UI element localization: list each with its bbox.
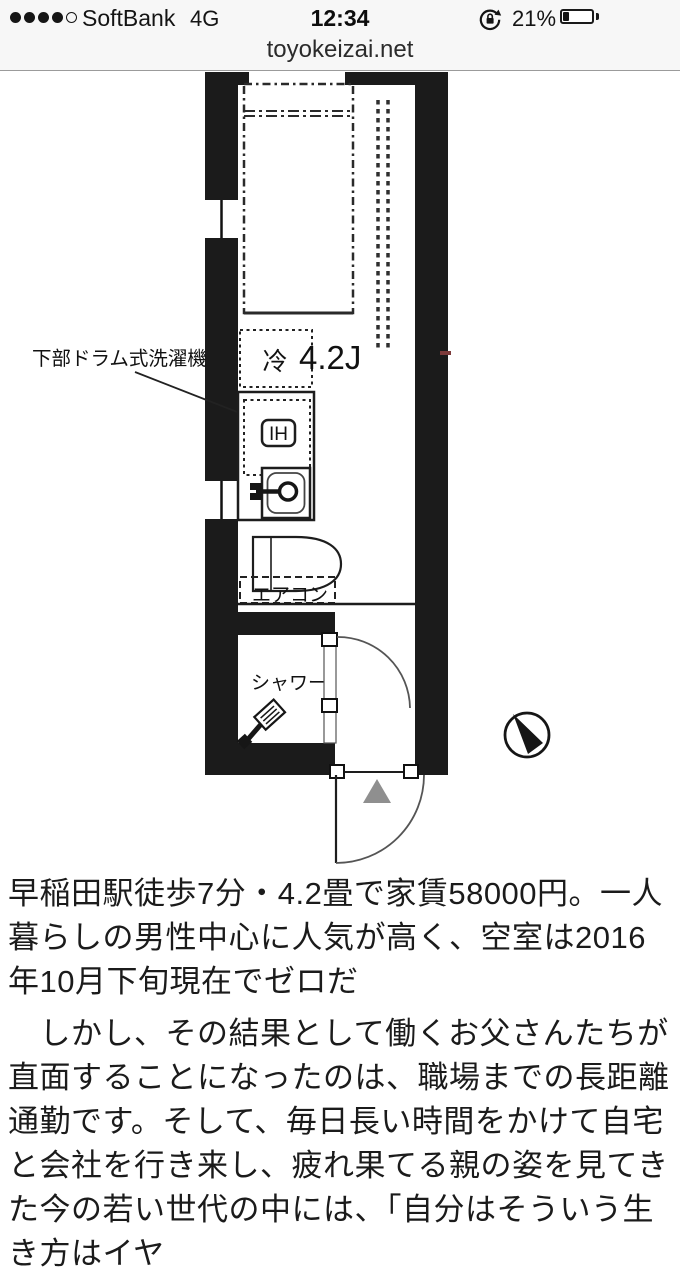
caption-paragraph: 早稲田駅徒歩7分・4.2畳で家賃58000円。一人暮らしの男性中心に人気が高く、… (8, 872, 674, 1004)
room-size-label: 4.2J (299, 339, 361, 376)
compass-icon (505, 713, 549, 757)
shower-head-icon (237, 700, 285, 750)
shower-door-arc (337, 637, 410, 708)
body-paragraph: しかし、その結果として働くお父さんたちが直面することになったのは、職場までの長距… (8, 1012, 674, 1276)
shower-label: シャワー (251, 673, 327, 694)
kitchen-counter: IH (238, 392, 314, 520)
loft-bed-outline (244, 84, 353, 313)
shower-door (322, 633, 410, 743)
red-mark (440, 351, 451, 355)
ih-label: IH (269, 424, 288, 445)
shower-top-wall (205, 612, 335, 635)
entrance-triangle (363, 779, 391, 803)
right-wall (415, 72, 448, 775)
washer-label: 下部ドラム式洗濯機 (32, 348, 207, 370)
toilet (253, 537, 341, 591)
window-lower (205, 481, 238, 519)
bottom-wall (205, 743, 335, 775)
floorplan-image: 冷 4.2J 下部ドラム式洗濯機 IH エアコン シャワー (0, 0, 680, 880)
window-upper (205, 200, 238, 238)
article-text: 早稲田駅徒歩7分・4.2畳で家賃58000円。一人暮らしの男性中心に人気が高く、… (8, 872, 674, 1276)
fridge-label: 冷 (262, 348, 287, 376)
entrance (330, 765, 424, 863)
left-wall (205, 72, 238, 775)
ladder (378, 100, 388, 348)
